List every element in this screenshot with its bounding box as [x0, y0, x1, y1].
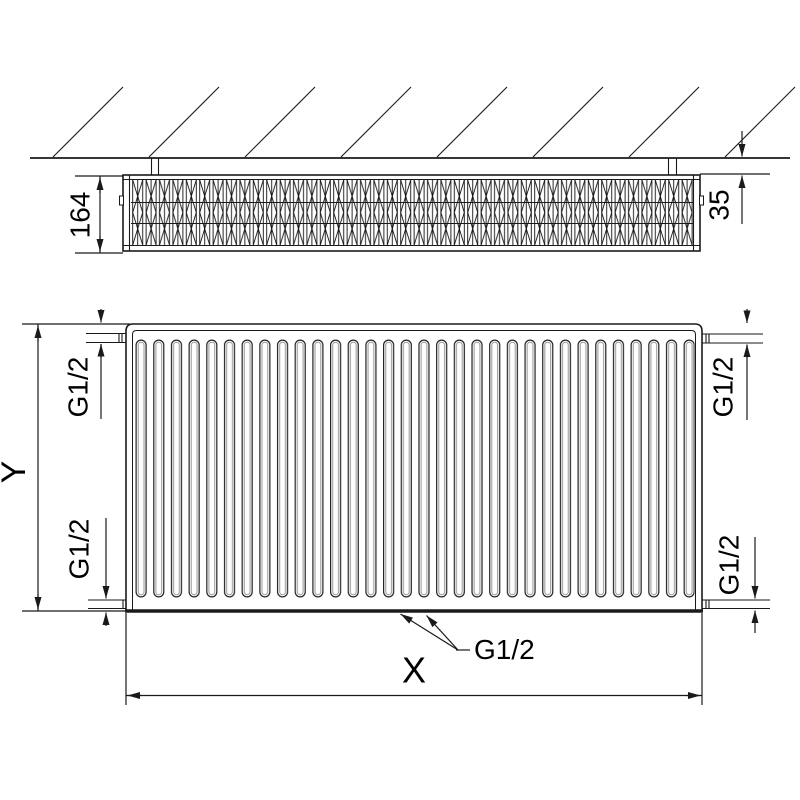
convector-fins-top: [131, 180, 693, 245]
top-view-body: [120, 175, 704, 251]
wall-hatching: [53, 87, 795, 157]
technical-drawing: 164 35: [0, 0, 800, 800]
wall-bracket-left: [152, 158, 159, 176]
dimension-connection-bottom-right: G1/2: [713, 535, 755, 633]
connection-label-top-right: G1/2: [707, 357, 738, 418]
connection-label-top-left: G1/2: [62, 357, 93, 418]
dimension-wall-distance-35: 35: [700, 131, 770, 224]
connection-label-bottom-left: G1/2: [63, 519, 94, 580]
dimension-width-x: X: [126, 613, 702, 705]
front-panel: [125, 324, 703, 612]
panel-fins: [136, 340, 695, 598]
dimension-depth-164: 164: [64, 176, 123, 253]
side-tab-left: [120, 196, 124, 205]
connection-stub-bottom-left: [88, 600, 128, 609]
connection-stub-top-left: [86, 334, 128, 343]
dimension-connection-top-left: G1/2: [62, 309, 101, 419]
radiator-front-view: Y X G1/2 G1/2: [0, 309, 770, 705]
depth-label: 164: [64, 192, 95, 239]
height-label: Y: [0, 461, 33, 484]
connection-stub-top-right: [700, 334, 763, 343]
connection-stub-bottom-right: [700, 600, 770, 609]
radiator-top-view: 164 35: [30, 87, 795, 253]
dimension-connection-bottom-left: G1/2: [63, 518, 106, 626]
connection-label-bottom-right: G1/2: [713, 535, 744, 596]
width-label: X: [402, 650, 426, 691]
dimension-connection-top-right: G1/2: [707, 309, 747, 420]
drawing-canvas: 164 35: [0, 0, 800, 800]
wall-bracket-right: [669, 158, 677, 176]
wall-distance-label: 35: [703, 189, 734, 220]
connection-label-bottom-center: G1/2: [474, 634, 535, 665]
